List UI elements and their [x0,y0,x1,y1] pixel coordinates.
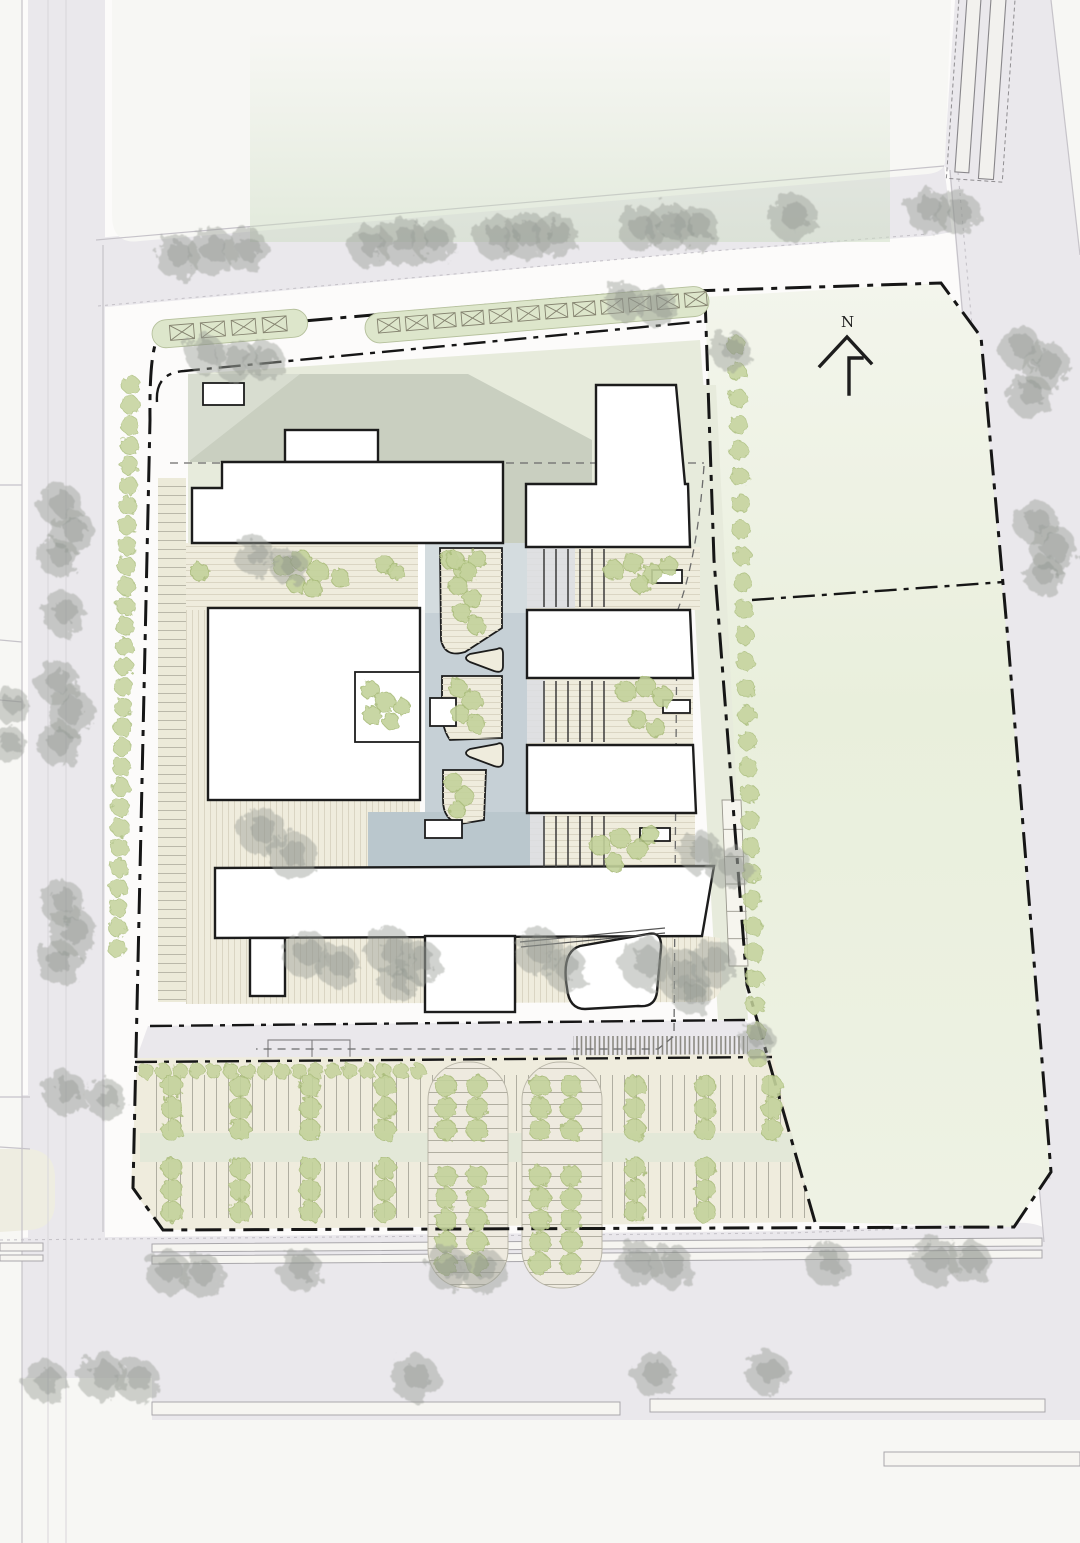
wing-bar-1 [527,610,693,678]
hedge-field-west [739,732,757,750]
parking-tree-icon [467,1188,488,1209]
site-plan-drawing: N [0,0,1080,1543]
parking-tree-icon [561,1076,582,1097]
parking-tree-icon [530,1166,551,1187]
tree-icon [36,941,80,985]
city-block-southwest [0,1149,55,1232]
tree-icon [769,194,817,242]
hedge-field-west [730,442,748,460]
tree-icon [543,947,587,991]
parking-tree-icon [695,1098,716,1119]
tree-icon [224,228,268,272]
shrub-icon [641,826,659,844]
parking-tree-icon [230,1098,251,1119]
parking-tree-icon [162,1158,183,1179]
parking-tree-icon [625,1180,646,1201]
parking-tree-icon [530,1120,551,1141]
tree-icon [948,1240,992,1284]
city-block-west-strip [0,0,22,1543]
shrub-icon [191,563,209,581]
hedge-left-road [110,859,128,877]
shrub-icon [363,706,381,724]
tree-icon [1023,555,1063,595]
parking-tree-icon [162,1076,183,1097]
tree-icon [746,1351,790,1395]
parking-tree-icon [375,1202,396,1223]
parking-tree-icon [530,1076,551,1097]
parking-tree-icon [300,1180,321,1201]
parking-tree-icon [762,1076,783,1097]
tree-icon [710,331,750,371]
hedge-left-road [116,637,134,655]
hedge-field-west [736,653,754,671]
hedge-left-road [113,758,131,776]
hedge-parking-top [139,1064,154,1079]
hedge-left-road [115,678,133,696]
tree-icon [534,213,578,257]
sidewalk-strip [650,1399,1045,1412]
parking-tree-icon [375,1180,396,1201]
shrub-icon [394,699,410,715]
hedge-field-west [738,706,756,724]
hedge-parking-top [326,1064,341,1079]
parking-tree-icon [625,1098,646,1119]
tree-icon [806,1242,850,1286]
tree-icon [708,846,752,890]
parking-tree-icon [530,1232,551,1253]
hedge-left-road [119,497,137,515]
tree-icon [1008,374,1052,418]
parking-tree-icon [561,1188,582,1209]
north-bar-building [192,462,503,543]
parking-tree-icon [300,1076,321,1097]
tree-icon [461,1248,505,1292]
hedge-left-road [122,396,140,414]
shrub-icon [660,557,678,575]
shrub-icon [605,853,623,871]
parking-tree-icon [530,1098,551,1119]
tree-icon [936,191,980,235]
hedge-left-road [121,436,139,454]
tree-icon [269,832,317,880]
parking-tree-icon [162,1098,183,1119]
city-block-south [0,1420,1080,1543]
parking-tree-icon [762,1098,783,1119]
parking-tree-icon [162,1202,183,1223]
parking-tree-icon [300,1202,321,1223]
shrub-icon [623,553,643,573]
parking-tree-icon [162,1120,183,1141]
parking-tree-icon [561,1232,582,1253]
tree-icon [378,961,418,1001]
parking-tree-icon [467,1120,488,1141]
hedge-field-west [740,785,758,803]
hedge-parking-top [275,1064,290,1079]
hedge-left-road [108,939,126,957]
tree-icon [271,549,307,585]
hedge-left-road [116,617,134,635]
parking-tree-icon [467,1210,488,1231]
shrub-icon [467,715,485,733]
parking-tree-icon [467,1076,488,1097]
north-label: N [841,313,854,331]
site-plan-stage: N [0,0,1080,1543]
hedge-left-road [115,658,133,676]
shrub-icon [449,802,465,818]
hedge-field-west [741,811,759,829]
south-leg-building [250,938,285,996]
parking-tree-icon [530,1254,551,1275]
shrub-icon [388,564,404,580]
parking-tree-icon [436,1210,457,1231]
hedge-left-road [111,838,129,856]
median-strip [0,1243,43,1251]
hedge-field-west [734,574,752,592]
parking-tree-icon [230,1158,251,1179]
parking-tree-icon [530,1188,551,1209]
parking-tree-icon [436,1120,457,1141]
shrub-icon [647,719,665,737]
shrub-icon [308,561,328,581]
tree-icon [675,206,719,250]
hedge-field-west [743,891,761,909]
hedge-field-west [736,626,754,644]
hedge-parking-top [292,1064,307,1079]
sidewalk-strip [152,1402,620,1415]
parking-tree-icon [230,1180,251,1201]
shrub-icon [383,713,399,729]
hedge-parking-top [411,1064,426,1079]
parking-tree-icon [625,1202,646,1223]
shrub-icon [653,687,673,707]
tree-icon [115,1358,159,1402]
tree-icon [412,219,456,263]
parking-tree-icon [530,1210,551,1231]
hedge-field-west [729,415,747,433]
tree-icon [739,1022,775,1058]
parking-tree-icon [625,1158,646,1179]
parking-tree-icon [230,1202,251,1223]
hedge-left-road [120,456,138,474]
hedge-field-west [733,547,751,565]
south-stub-building [425,936,515,1012]
shrub-icon [449,577,467,595]
parking-tree-icon [695,1180,716,1201]
parking-tree-icon [561,1166,582,1187]
hedge-left-road [120,477,138,495]
hedge-parking-top [258,1064,273,1079]
shrub-icon [304,580,322,598]
penthouse-block [285,430,378,462]
parking-tree-icon [695,1120,716,1141]
parking-tree-icon [162,1180,183,1201]
tree-icon [316,944,360,988]
hedge-field-west [729,389,747,407]
tree-icon [42,592,86,636]
parking-tree-icon [436,1166,457,1187]
parking-tree-icon [625,1076,646,1097]
tree-icon [391,1354,439,1402]
tree-icon [672,976,712,1016]
tree-icon [37,722,81,766]
hedge-field-west [737,679,755,697]
shrub-icon [603,560,623,580]
hedge-left-road [112,798,130,816]
hedge-left-road [110,879,128,897]
hedge-parking-top [207,1064,222,1079]
hedge-left-road [114,718,132,736]
hedge-left-road [117,577,135,595]
tree-icon [649,1244,693,1288]
parking-tree-icon [300,1120,321,1141]
shrub-icon [590,835,610,855]
wing-bar-2 [527,745,696,813]
parking-tree-icon [467,1166,488,1187]
hedge-parking-top [343,1064,358,1079]
tree-icon [278,1248,322,1292]
tree-icon [637,287,677,327]
shrub-icon [451,705,469,723]
parking-tree-icon [230,1120,251,1141]
hedge-left-road [121,416,139,434]
tree-icon [43,1071,87,1115]
parking-tree-icon [625,1120,646,1141]
parking-tree-icon [375,1120,396,1141]
shrub-icon [616,682,636,702]
shrub-icon [610,828,630,848]
parking-tree-icon [467,1098,488,1119]
hedge-left-road [109,899,127,917]
hedge-left-road [118,537,136,555]
parking-tree-icon [561,1210,582,1231]
hedge-field-west [746,970,764,988]
hedge-field-west [732,494,750,512]
parking-tree-icon [436,1076,457,1097]
hedge-parking-top [360,1064,375,1079]
tree-icon [236,537,276,577]
small-annex-building [203,383,244,405]
hedge-left-road [111,818,129,836]
parking-tree-icon [375,1158,396,1179]
hedge-left-road [122,376,140,394]
hedge-field-west [745,943,763,961]
shrub-icon [331,569,349,587]
hedge-field-west [739,759,757,777]
shrub-icon [631,575,649,593]
tree-icon [38,537,78,577]
median-strip [0,1255,43,1261]
hedge-field-west [735,600,753,618]
parking-tree-icon [762,1120,783,1141]
pool-stub [425,820,462,838]
tree-icon [86,1079,126,1119]
tree-icon [180,1253,224,1297]
parking-tree-icon [695,1202,716,1223]
hedge-left-road [114,698,132,716]
parking-tree-icon [561,1098,582,1119]
hedge-left-road [112,778,130,796]
parking-tree-icon [300,1158,321,1179]
parking-tree-icon [561,1254,582,1275]
parking-tree-icon [695,1158,716,1179]
hedge-field-west [731,468,749,486]
hedge-field-west [746,996,764,1014]
hedge-left-road [117,597,135,615]
parking-tree-icon [300,1098,321,1119]
shrub-icon [629,711,647,729]
hedge-left-road [118,557,136,575]
hedge-field-west [732,521,750,539]
city-block-south-west [0,1378,152,1543]
shrub-icon [453,603,471,621]
parking-tree-icon [436,1188,457,1209]
parking-tree-icon [375,1076,396,1097]
sidewalk-strip [884,1452,1080,1466]
parking-tree-icon [375,1098,396,1119]
hedge-left-road [119,517,137,535]
shrub-icon [467,616,485,634]
parking-tree-icon [695,1076,716,1097]
tree-icon [23,1359,67,1403]
hedge-left-road [113,738,131,756]
hedge-parking-top [394,1064,409,1079]
parking-tree-icon [561,1120,582,1141]
parking-tree-icon [230,1076,251,1097]
hedge-left-road [109,919,127,937]
tree-icon [244,340,284,380]
hedge-parking-top [190,1064,205,1079]
tree-icon [632,1353,676,1397]
hedge-field-west [744,917,762,935]
parking-tree-icon [436,1098,457,1119]
